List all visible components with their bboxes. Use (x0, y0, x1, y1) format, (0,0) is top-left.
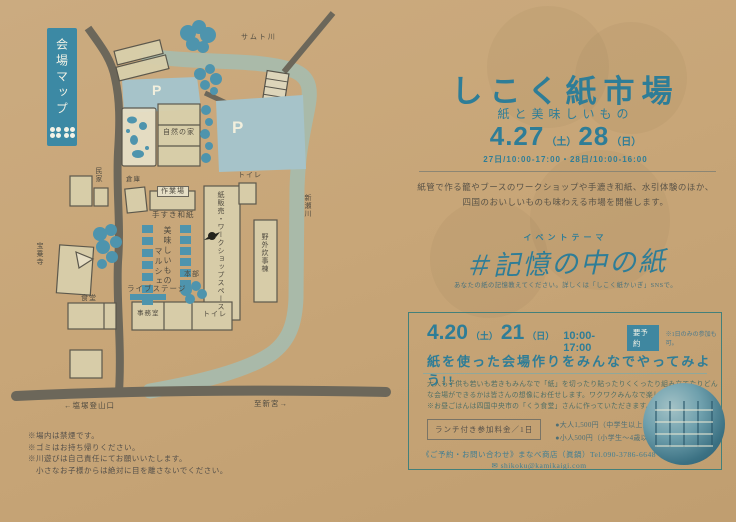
description-line: 紙管で作る籠やブースのワークショップや手漉き和紙、水引体験のほか、 (395, 180, 736, 195)
workshop-date-weekday2: （日） (527, 329, 554, 342)
email-address: shikoku@kamikaigi.com (501, 461, 587, 470)
parking-p-top: P (152, 82, 161, 98)
map-note-line: ※場内は禁煙です。 (28, 430, 228, 442)
map-banner: 会場マップ (47, 28, 77, 146)
email-icon: ✉ (491, 461, 498, 470)
map-label-tesuki-washi: 手すき和紙 (152, 211, 195, 219)
map-label-shokudo: 食堂 (81, 295, 97, 302)
event-description: 紙管で作る籠やブースのワークショップや手漉き和紙、水引体験のほか、 四国のおいし… (395, 180, 736, 210)
map-label-minka: 民家 (95, 167, 102, 183)
map-label-live-stage: ライブステージ (127, 285, 186, 293)
map-label-road-left: ←塩塚登山口 (64, 402, 115, 410)
date-day1: 4.27 (490, 121, 545, 152)
date-day2: 28 (578, 121, 609, 152)
workshop-divider (423, 373, 707, 374)
map-label-toilet-bottom: トイレ (203, 311, 227, 318)
workshop-date-day2: 21 (501, 321, 524, 345)
date-weekday2: （日） (611, 133, 641, 148)
description-line: 四国のおいしいものも味わえる市場を開催します。 (395, 195, 736, 210)
event-hours: 27日/10:00-17:00・28日/10:00-16:00 (395, 154, 736, 165)
map-label-yagai-suiji: 野外炊事棟 (261, 233, 268, 273)
map-label-shinse-river: 新瀬川 (304, 194, 311, 218)
email-line: ✉ shikoku@kamikaigi.com (409, 461, 669, 470)
workshop-box: 4.20 （土） 21 （日） 10:00-17:00 要予約 ※1日のみの参加… (408, 312, 722, 470)
contact-info: 《ご予約・お問い合わせ》まなべ商店（眞鍋）Tel.090-3786-6648 (409, 449, 669, 460)
map-label-nature-house: 自然の家 (163, 129, 195, 136)
map-label-toilet-top: トイレ (238, 172, 262, 179)
event-flyer: 会場マップ サムト川 P P 自然の家 民家 倉庫 作業場 手すき和紙 美味しい… (0, 0, 736, 522)
map-banner-title: 会場マップ (54, 38, 71, 118)
map-label-jimushitsu: 事務室 (137, 311, 160, 318)
workshop-date-weekday1: （土） (471, 329, 498, 342)
date-weekday1: （土） (546, 133, 576, 148)
workshop-date-day1: 4.20 (427, 321, 468, 345)
map-notes: ※場内は禁煙です。 ※ゴミはお持ち帰りください。 ※川遊びは自己責任にてお願いい… (28, 430, 228, 477)
event-theme-hashtag: ＃記憶の中の紙 (395, 238, 736, 286)
map-label-honbu: 本部 (184, 271, 200, 278)
event-dates: 4.27 （土） 28 （日） (395, 121, 736, 152)
flower-logo-icon (50, 127, 75, 138)
divider-line (419, 171, 716, 172)
map-label-souko: 倉庫 (126, 177, 141, 184)
map-label-marche: マルシェ (154, 247, 162, 287)
workshop-photo (643, 383, 725, 465)
event-subtitle: 紙と美味しいもの (395, 105, 736, 122)
map-note-line: ※川遊びは自己責任にてお願いいたします。 (28, 453, 228, 465)
venue-map-panel: 会場マップ サムト川 P P 自然の家 民家 倉庫 作業場 手すき和紙 美味しい… (0, 0, 395, 522)
theme-note: あなたの紙の記憶教えてください。詳しくは「しこく紙かいぎ」SNSで。 (395, 280, 736, 289)
reservation-badge-note: ※1日のみの参加も可。 (666, 329, 721, 347)
event-info-panel: しこく紙市場 紙と美味しいもの 4.27 （土） 28 （日） 27日/10:0… (395, 0, 736, 522)
reservation-badge: 要予約 (627, 325, 659, 351)
parking-lot-right (216, 95, 306, 172)
workshop-dates: 4.20 （土） 21 （日） 10:00-17:00 要予約 ※1日のみの参加… (427, 321, 721, 354)
map-label-sagyoba: 作業場 (157, 186, 189, 197)
map-label-kami-hanbai: 紙販売・ワークショップスペース (217, 191, 224, 311)
parking-p-right: P (232, 118, 243, 138)
live-stage-bar (130, 294, 166, 300)
map-label-samuto-river: サムト川 (241, 34, 277, 41)
map-label-oishii-mono: 美味しいもの (163, 226, 171, 286)
map-note-line: ※ゴミはお持ち帰りください。 (28, 442, 228, 454)
map-label-road-right: 至新宮→ (254, 400, 288, 408)
map-note-line: 小さなお子様からは絶対に目を離さないでください。 (28, 465, 228, 477)
price-label: ランチ付き参加料金／1日 (427, 419, 541, 440)
map-label-temple: 宝乗寺 (36, 242, 43, 266)
